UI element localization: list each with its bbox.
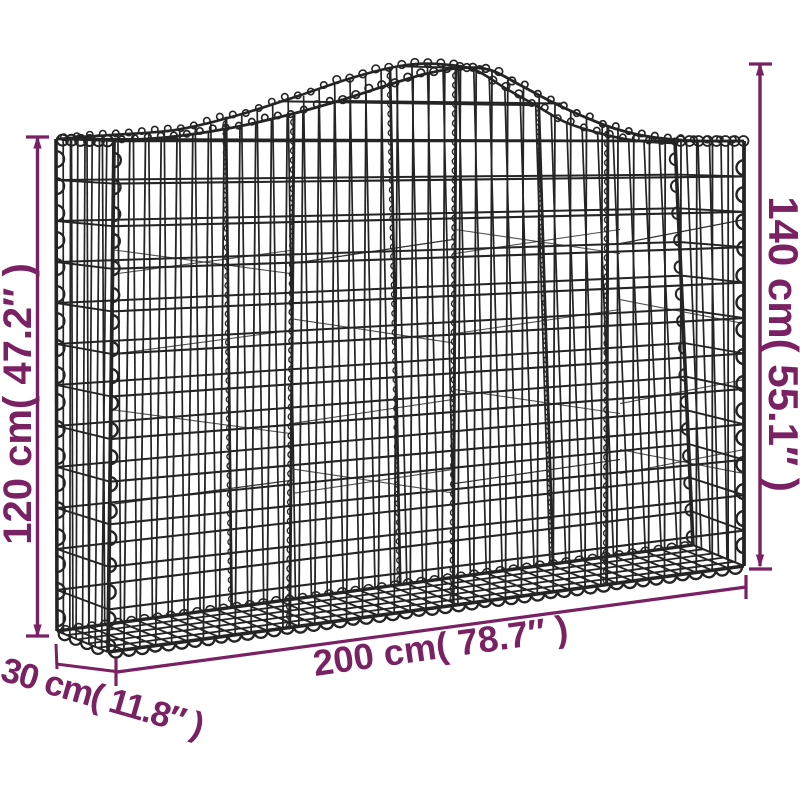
svg-text:140 cm( 55.1″ ): 140 cm( 55.1″ ) xyxy=(760,196,800,492)
svg-text:120 cm( 47.2″ ): 120 cm( 47.2″ ) xyxy=(0,263,40,545)
